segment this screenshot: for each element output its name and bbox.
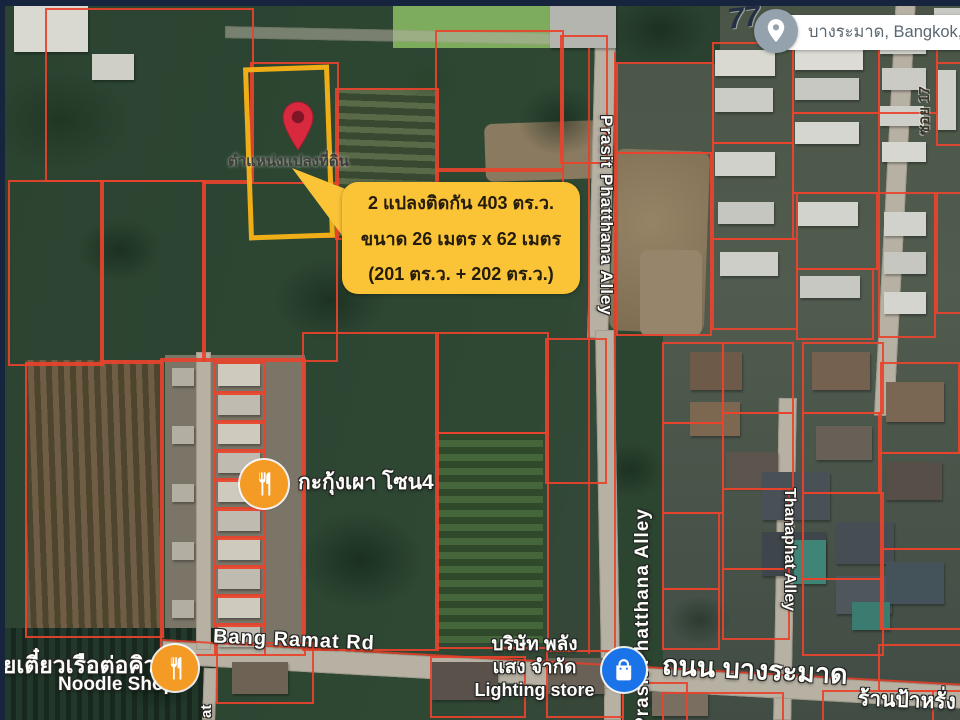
parcel-outline	[936, 62, 960, 146]
map-pin-avatar-icon[interactable]	[754, 9, 798, 53]
parcel-outline	[802, 412, 880, 494]
parcel-outline	[712, 142, 794, 240]
map-pin-icon[interactable]	[280, 100, 316, 152]
lighting-line2: แสง จำกัด	[452, 656, 617, 679]
building-roof	[882, 142, 926, 162]
parcel-line	[588, 48, 590, 654]
parcel-outline	[435, 332, 549, 434]
parcel-outline	[8, 180, 104, 366]
parcel-outline	[545, 338, 607, 484]
parcel-outline	[802, 578, 884, 656]
road-label-thanaphat: Thanaphat Alley	[780, 488, 798, 611]
parcel-outline	[45, 8, 254, 182]
restaurant-icon[interactable]	[152, 645, 198, 691]
road-label-soi17: ซอย 17	[912, 86, 936, 135]
parcel-outline	[712, 238, 798, 330]
parcel-outline	[712, 42, 794, 144]
top-border-strip	[0, 0, 960, 6]
parcel-outline	[616, 152, 712, 336]
parcel-outline	[880, 548, 960, 630]
parcel-outline	[662, 512, 720, 590]
parcel-outline	[616, 62, 714, 154]
parcel-outline	[880, 362, 960, 454]
parcel-outline	[880, 452, 960, 550]
parcel-outline	[662, 422, 724, 514]
parcel-outline	[802, 492, 884, 580]
satellite-map[interactable]: Prasit Phatthana Alley Prasit Phatthana …	[0, 0, 960, 720]
parcel-outline	[662, 692, 784, 720]
parcel-outline	[100, 180, 206, 362]
callout-line-3: (201 ตร.ว. + 202 ตร.ว.)	[368, 259, 554, 288]
parcel-outline	[802, 342, 884, 414]
parcel-outline	[796, 192, 878, 270]
parcel-outline	[662, 588, 720, 650]
parcel-outline	[792, 112, 880, 194]
parcel-outline	[25, 362, 164, 638]
callout-line-1: 2 แปลงติดกัน 403 ตร.ว.	[368, 188, 554, 217]
parcel-outline	[792, 42, 880, 114]
road-label-partial: at	[198, 705, 215, 718]
parcel-outline	[796, 268, 874, 340]
search-pill[interactable]: บางระมาด, Bangkok, Tha	[772, 15, 960, 50]
place-label-grill-zone: กะกุ้งเผา โซน4	[298, 466, 434, 499]
trees-patch	[615, 0, 720, 64]
plot-info-callout: 2 แปลงติดกัน 403 ตร.ว. ขนาด 26 เมตร x 62…	[342, 182, 580, 294]
road-label-prasit-upper: Prasit Phatthana Alley	[596, 115, 616, 316]
parcel-outline	[435, 432, 549, 649]
parcel-outline	[435, 30, 564, 172]
lighting-line1: บริษัท พลัง	[452, 633, 617, 656]
parcel-outline	[722, 412, 794, 490]
parcel-outline	[878, 192, 936, 338]
lighting-line3: Lighting store	[452, 679, 617, 702]
callout-line-2: ขนาด 26 เมตร x 62 เมตร	[361, 224, 561, 253]
parcel-outline	[722, 342, 794, 414]
store-icon[interactable]	[602, 648, 646, 692]
restaurant-icon[interactable]	[240, 460, 288, 508]
place-label-shop-bottom-right: ร้านป้าหรั่ง	[857, 682, 956, 718]
parcel-outline	[936, 192, 960, 314]
place-label-lighting-store: บริษัท พลัง แสง จำกัด Lighting store	[452, 633, 617, 702]
parcel-outline	[662, 342, 724, 424]
left-border-strip	[0, 0, 5, 720]
